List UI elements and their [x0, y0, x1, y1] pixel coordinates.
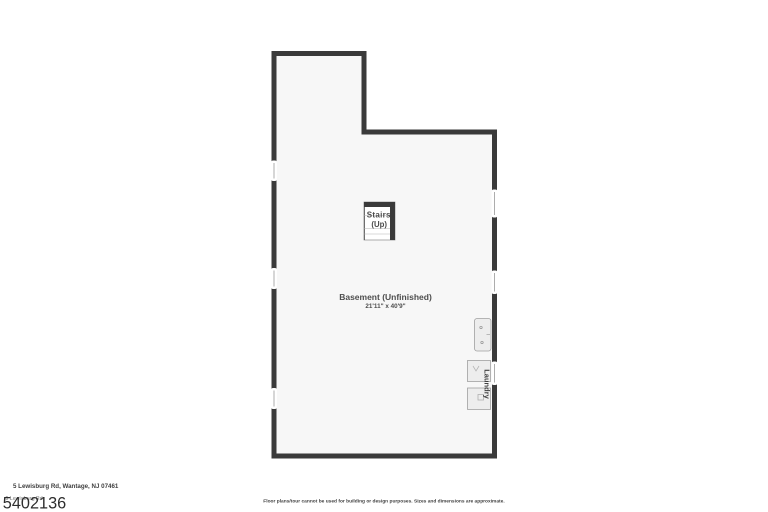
svg-text:(Up): (Up) — [371, 220, 387, 229]
svg-text:Laundry: Laundry — [483, 369, 492, 399]
svg-text:5 Lewisburg Rd, Wantage, NJ 07: 5 Lewisburg Rd, Wantage, NJ 07461 — [13, 483, 119, 490]
svg-text:Stairs: Stairs — [367, 211, 391, 220]
svg-text:Basement (Unfinished): Basement (Unfinished) — [339, 292, 432, 302]
svg-text:21'11" x 40'9": 21'11" x 40'9" — [365, 303, 405, 310]
svg-text:5402136: 5402136 — [3, 494, 66, 512]
svg-text:Floor plans/tour cannot be use: Floor plans/tour cannot be used for buil… — [263, 499, 505, 505]
